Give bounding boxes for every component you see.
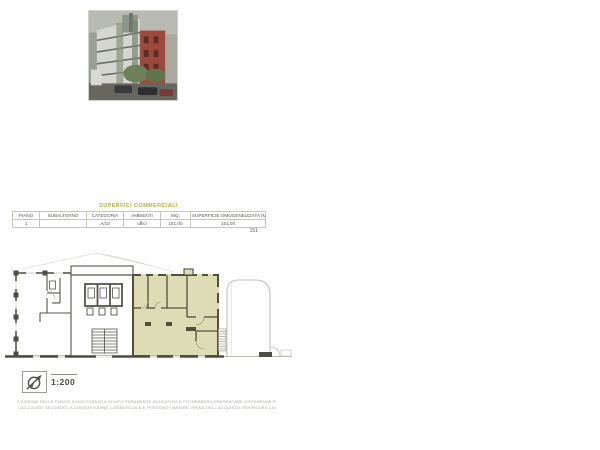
- table-title: SUPERFICI COMMERCIALI: [12, 203, 265, 210]
- scale-label: 1:200: [51, 377, 75, 387]
- col-header-subalterno: SUBALTERNO: [40, 212, 87, 220]
- cell-subalterno: [40, 220, 87, 228]
- table-header-row: PIANO SUBALTERNO CATEGORIA AMBIENTI MQ. …: [13, 212, 266, 220]
- cell-ambienti: uffici: [124, 220, 161, 228]
- col-header-superficie: SUPERFICIE OMOGENEIZZATA (MQ): [191, 212, 266, 220]
- floor-plan: [0, 245, 300, 375]
- cell-mq: 151,00: [161, 220, 191, 228]
- core: [71, 266, 133, 356]
- building-photo: [88, 10, 178, 101]
- table-total: 151: [12, 228, 265, 234]
- col-header-categoria: CATEGORIA: [87, 212, 124, 220]
- listing-page: SUPERFICI COMMERCIALI PIANO SUBALTERNO C…: [0, 0, 600, 450]
- col-header-ambienti: AMBIENTI: [124, 212, 161, 220]
- building-photo-art: [89, 11, 177, 100]
- cell-categoria: A/10: [87, 220, 124, 228]
- cell-piano: 1: [13, 220, 40, 228]
- north-arrow-icon: [23, 372, 46, 392]
- north-compass: [22, 371, 47, 393]
- table-data-row: 1 A/10 uffici 151,00 151,00: [13, 220, 266, 228]
- elevators: [85, 284, 122, 306]
- left-wing: [14, 271, 80, 357]
- stairs: [92, 329, 117, 353]
- adjacent-annex: [227, 280, 280, 356]
- cell-superficie: 151,00: [191, 220, 266, 228]
- disclaimer-line-1: I DISEGNI DELLE PIANTE SONO FORNITI A SC…: [18, 399, 276, 404]
- disclaimer-line-2: CALCOLATE SECONDO LA CONSUETUDINE COMMER…: [18, 405, 276, 410]
- floor-plan-drawing: [0, 245, 300, 375]
- scale-bar-line: [51, 374, 77, 375]
- side-ramp-hatch: [219, 329, 227, 351]
- surfaces-table: PIANO SUBALTERNO CATEGORIA AMBIENTI MQ. …: [12, 211, 266, 228]
- highlighted-unit: [133, 269, 218, 356]
- col-header-piano: PIANO: [13, 212, 40, 220]
- col-header-mq: MQ.: [161, 212, 191, 220]
